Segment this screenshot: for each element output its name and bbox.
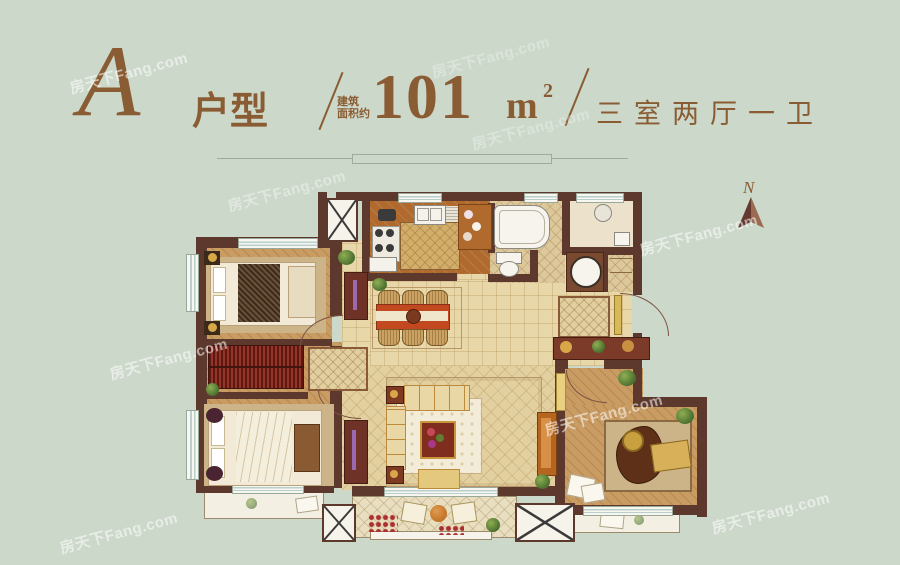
tv-cabinet-handle <box>352 430 356 470</box>
coffee-table-flower-2 <box>436 434 444 442</box>
closet-rug <box>308 347 368 391</box>
bedroom2-lamp-top-glow <box>208 253 217 262</box>
bedroom2-lamp-bottom-glow <box>208 323 217 332</box>
bath-window <box>524 193 558 203</box>
plan-type-label: 户型 <box>192 80 268 135</box>
dining-chair-5 <box>402 329 424 346</box>
storage-nook-floor <box>608 250 634 292</box>
study-side-window <box>556 373 566 411</box>
console-plant-icon <box>592 340 605 353</box>
wall-study-step-top <box>633 397 707 407</box>
hall-cabinet-handle <box>353 280 357 310</box>
sofa-ottoman <box>418 469 460 489</box>
console-bowl-icon <box>622 340 634 352</box>
closet-plant-icon <box>206 383 219 396</box>
kitchen-sink-bowl-1 <box>417 208 429 221</box>
storage-shelf-line-2 <box>610 272 632 273</box>
watermark: 房天下Fang.com <box>57 507 180 559</box>
room-layout-label: 三室两厅一卫 <box>596 92 824 131</box>
balcony-rail <box>370 531 492 540</box>
wall-toilet-right <box>530 250 538 282</box>
kitchen-microwave <box>369 257 397 272</box>
stove-burner-4 <box>386 244 394 252</box>
dining-chair-4 <box>378 329 400 346</box>
floorplan-page: A 户型 建筑 面积约 101 m 2 三室两厅一卫 <box>0 0 900 565</box>
shower-window <box>576 193 624 203</box>
shower-drain <box>614 232 630 246</box>
coffee-table-flower-3 <box>428 440 436 448</box>
dining-chair-6 <box>426 329 448 346</box>
compass-north-label: N <box>743 178 754 198</box>
master-rug-bottom <box>206 466 223 481</box>
balcony-flowers-left <box>368 514 398 532</box>
foyer-rug <box>558 296 610 338</box>
flue-shaft <box>326 198 358 242</box>
area-note-line2: 面积约 <box>337 108 370 120</box>
tv-cabinet <box>344 420 368 484</box>
master-bay-window <box>186 410 199 480</box>
kitchen-island-mat <box>400 222 460 270</box>
vanity-flower-1 <box>464 210 473 219</box>
balcony-cushion-left <box>400 501 427 525</box>
kitchen-sink-bowl-2 <box>430 208 442 221</box>
bedroom2-pillow-2 <box>213 295 226 321</box>
console-lamp-icon <box>560 341 572 353</box>
balcony-flowers-center <box>438 525 464 535</box>
bedroom2-pillow-1 <box>213 267 226 293</box>
kitchen-window <box>398 193 442 203</box>
wall-bath-shower-divider <box>562 199 570 251</box>
entry-door-arc <box>620 293 669 336</box>
area-note: 建筑 面积约 <box>337 96 370 120</box>
master-quilt <box>236 412 292 482</box>
sofa-chaise <box>386 406 406 470</box>
stove-burner-2 <box>386 229 394 237</box>
slash-divider-2 <box>564 68 589 126</box>
master-bench <box>294 424 320 472</box>
wall-right-upper <box>633 192 642 295</box>
toilet-bowl <box>499 261 519 277</box>
study-desk-globe <box>622 430 644 452</box>
storage-shelf-line-1 <box>610 258 632 259</box>
study-plant-top-icon <box>618 370 636 386</box>
balcony-cushion-right <box>451 501 478 524</box>
stove-burner-1 <box>375 229 383 237</box>
compass: N <box>735 178 769 230</box>
compass-needle-icon <box>737 196 765 230</box>
area-unit: m <box>506 84 538 128</box>
kitchen-kettle <box>378 209 396 221</box>
wall-study-top-b <box>604 360 642 369</box>
vanity-flower-3 <box>463 232 472 241</box>
wall-study-top-a <box>555 360 568 369</box>
stove-burner-3 <box>375 244 383 252</box>
wash-basin <box>570 256 602 288</box>
balcony-chair-sketch <box>295 496 319 514</box>
area-unit-superscript: 2 <box>543 80 553 103</box>
balcony-table <box>430 505 447 522</box>
master-rug-top <box>206 408 223 423</box>
bedroom2-window <box>238 238 318 249</box>
decor-line-box <box>352 154 552 164</box>
study-plant-right-icon <box>676 408 694 424</box>
shower-head <box>594 204 612 222</box>
bathtub-inner <box>499 210 545 244</box>
study-chair <box>650 439 692 472</box>
wall-study-right <box>697 397 707 517</box>
ac-platform-left <box>322 504 356 542</box>
study-window <box>583 506 673 516</box>
watermark: 房天下Fang.com <box>709 487 832 539</box>
side-table-bottom-lamp <box>390 470 398 478</box>
bedroom2-bench <box>288 266 316 318</box>
living-plant-icon <box>535 474 550 489</box>
living-window-seat-cushion <box>541 418 551 468</box>
corridor-plant-icon <box>338 250 355 265</box>
balcony-plant-icon <box>246 498 257 509</box>
side-table-top-lamp <box>390 390 398 398</box>
vanity-flower-2 <box>472 222 481 231</box>
study-papers-2 <box>581 482 606 504</box>
bedroom2-bay-window <box>186 254 199 312</box>
ledge-plant-icon <box>634 515 644 525</box>
bedroom2-quilt <box>238 264 280 322</box>
balcony-plant-right-icon <box>486 518 500 532</box>
plan-letter: A <box>78 34 140 130</box>
ac-platform-right <box>515 503 575 542</box>
coffee-table-flower-1 <box>427 428 435 436</box>
wardrobe-lower <box>208 367 304 389</box>
wardrobe-upper <box>208 345 304 367</box>
area-note-line1: 建筑 <box>337 96 370 108</box>
area-value: 101 <box>372 60 474 134</box>
sofa-main <box>404 385 470 411</box>
dining-centerpiece <box>406 309 421 324</box>
